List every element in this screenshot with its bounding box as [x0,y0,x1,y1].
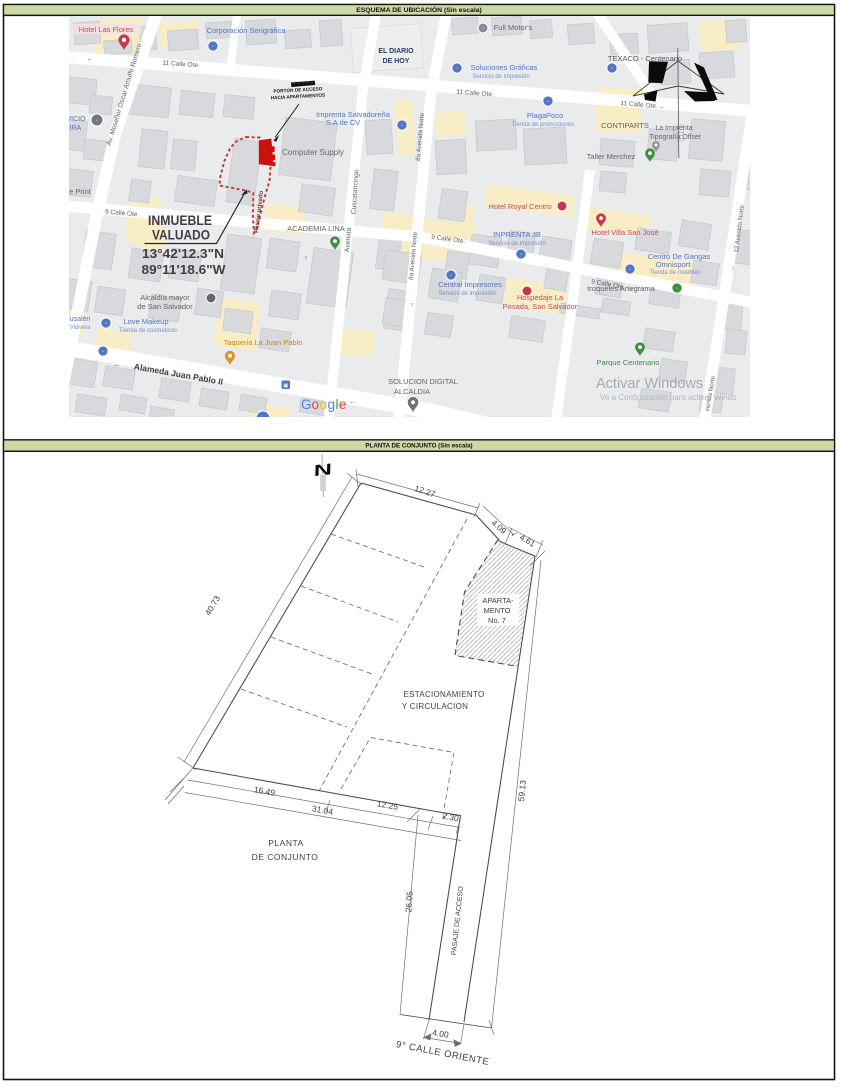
svg-text:Posada, San Salvador: Posada, San Salvador [503,302,578,311]
svg-text:◦: ◦ [676,286,678,292]
svg-text:Soluciones Gráficas: Soluciones Gráficas [471,63,538,72]
svg-text:Alcaldía mayor: Alcaldía mayor [140,293,190,302]
svg-text:13°42'12.3"N: 13°42'12.3"N [142,246,224,261]
svg-text:Tienda de promociones: Tienda de promociones [512,122,574,128]
svg-text:Servicio de impresión: Servicio de impresión [438,291,495,297]
svg-text:VICIO: VICIO [66,116,86,123]
svg-text:No. 7: No. 7 [488,616,506,625]
svg-text:←: ← [349,397,357,406]
svg-text:troqueles Artegrama: troqueles Artegrama [587,284,655,293]
svg-text:Activar Windows: Activar Windows [596,376,703,392]
svg-text:PLANTA: PLANTA [268,838,303,848]
svg-text:Corporación Serigráfica: Corporación Serigráfica [207,26,287,35]
svg-text:Computer Supply: Computer Supply [282,148,344,157]
svg-text:Vidriera: Vidriera [70,325,91,331]
svg-text:◦: ◦ [547,99,549,105]
svg-text:89°11'18.6"W: 89°11'18.6"W [142,262,227,277]
svg-text:◦: ◦ [520,252,522,258]
svg-text:MENTO: MENTO [484,606,511,615]
svg-text:26.05: 26.05 [403,891,414,913]
svg-text:APARTA-: APARTA- [482,596,514,605]
svg-text:Tienda de cosméticos: Tienda de cosméticos [119,328,177,334]
svg-text:de San Salvador: de San Salvador [137,302,193,311]
svg-text:↑: ↑ [410,302,414,309]
svg-text:Love Makeup: Love Makeup [123,317,168,326]
svg-text:◦: ◦ [105,321,107,327]
svg-text:◦: ◦ [102,349,104,355]
svg-text:EL DIARIO: EL DIARIO [378,48,414,55]
svg-text:usalén: usalén [70,316,91,323]
svg-text:CONTIPARTS: CONTIPARTS [601,121,649,130]
svg-text:TEXACO - Centenario: TEXACO - Centenario [608,54,682,63]
svg-text:Tipografía Offset: Tipografía Offset [649,134,701,141]
svg-text:◦: ◦ [450,273,452,279]
svg-text:↙: ↙ [442,813,449,821]
svg-text:◦: ◦ [212,44,214,50]
svg-text:▣: ▣ [283,383,289,389]
svg-text:o: o [312,397,320,412]
svg-text:Hospedaje La: Hospedaje La [517,293,564,302]
svg-text:Taller Merchez: Taller Merchez [587,152,636,161]
svg-text:SOLUCION DIGITAL: SOLUCION DIGITAL [388,377,458,386]
svg-text:PlagaPoco: PlagaPoco [527,111,563,120]
svg-text:↑: ↑ [731,266,735,273]
svg-text:ESTACIONAMIENTO: ESTACIONAMIENTO [403,690,484,699]
svg-text:INPRENTA JB: INPRENTA JB [493,230,541,239]
svg-text:◦: ◦ [456,66,458,72]
svg-text:e Print: e Print [69,187,92,196]
svg-text:Omnisport: Omnisport [656,260,692,269]
svg-text:Central Impresores: Central Impresores [438,280,502,289]
svg-text:ESQUEMA DE UBICACIÓN (Sin esca: ESQUEMA DE UBICACIÓN (Sin escala) [356,5,482,14]
svg-text:S.A de CV: S.A de CV [326,118,361,127]
svg-text:Taqueria La Juan Pablo: Taqueria La Juan Pablo [224,338,303,347]
svg-text:DE CONJUNTO: DE CONJUNTO [252,852,319,862]
svg-text:Tienda de muebles: Tienda de muebles [650,270,701,276]
svg-text:Servicio de impresión: Servicio de impresión [472,74,529,80]
svg-text:Ve a Configuración para activa: Ve a Configuración para activar Windo [600,393,737,402]
svg-text:g: g [328,397,336,412]
svg-text:Parque Centenario: Parque Centenario [597,358,660,367]
svg-text:◦: ◦ [482,26,484,32]
svg-text:◦: ◦ [629,267,631,273]
svg-text:G: G [301,397,312,412]
svg-text:o: o [320,397,328,412]
svg-text:VALUADO: VALUADO [152,228,210,243]
svg-text:↑: ↑ [304,255,308,262]
svg-text:Y CIRCULACION: Y CIRCULACION [402,702,468,711]
svg-text:Full Motor's: Full Motor's [494,23,533,32]
svg-text:◦: ◦ [401,123,403,129]
svg-text:Hotel Villa San José: Hotel Villa San José [592,228,659,237]
svg-text:◦: ◦ [96,118,98,124]
svg-text:←: ← [113,359,122,369]
svg-text:◦: ◦ [611,66,613,72]
svg-text:Hotel Royal Centro: Hotel Royal Centro [488,202,551,211]
svg-text:La Imprenta: La Imprenta [655,125,692,132]
svg-text:←: ← [86,56,93,63]
svg-text:PLANTA DE CONJUNTO (Sin escala: PLANTA DE CONJUNTO (Sin escala) [365,443,472,450]
svg-text:DE HOY: DE HOY [383,58,410,65]
svg-text:e: e [339,397,347,412]
svg-text:ACADEMIA LINA: ACADEMIA LINA [287,224,345,233]
svg-text:Hotel Las Flores: Hotel Las Flores [79,25,134,34]
svg-text:Servicio de impresión: Servicio de impresión [488,241,545,247]
svg-text:ALCALDIA: ALCALDIA [394,387,430,396]
